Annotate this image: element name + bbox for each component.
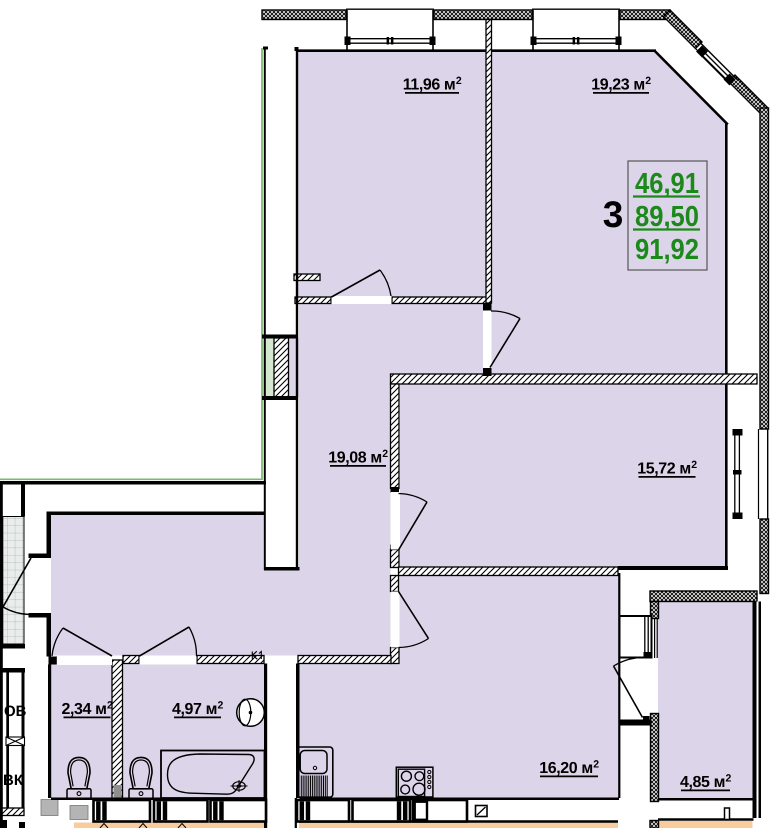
svg-text:ВК: ВК	[3, 772, 24, 789]
svg-text:3: 3	[603, 194, 624, 235]
svg-text:19,23 м2: 19,23 м2	[591, 75, 651, 94]
svg-text:89,50: 89,50	[635, 201, 699, 233]
svg-text:19,08 м2: 19,08 м2	[328, 448, 388, 467]
svg-text:2,34 м2: 2,34 м2	[62, 700, 114, 719]
svg-text:ОВ: ОВ	[4, 703, 27, 720]
svg-text:4,97 м2: 4,97 м2	[172, 700, 224, 719]
svg-text:4,85 м2: 4,85 м2	[680, 773, 732, 792]
svg-text:11,96 м2: 11,96 м2	[403, 75, 462, 94]
svg-text:46,91: 46,91	[635, 168, 699, 200]
svg-text:15,72 м2: 15,72 м2	[637, 459, 697, 478]
svg-text:91,92: 91,92	[635, 234, 699, 266]
svg-text:16,20 м2: 16,20 м2	[539, 759, 599, 778]
